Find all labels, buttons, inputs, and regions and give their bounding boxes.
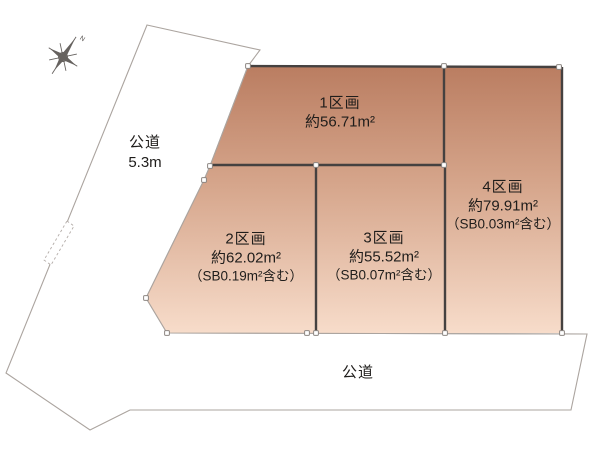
compass-icon: N xyxy=(38,23,93,83)
parcel-3-label: 3区画 約55.52m² （SB0.07m²含む） xyxy=(327,230,441,285)
left-road-label: 公道 5.3m xyxy=(128,133,161,173)
compass-north-label: N xyxy=(78,35,86,44)
parcel-sb-note: （SB0.07m²含む） xyxy=(327,267,441,285)
parcel-2-label: 2区画 約62.02m² （SB0.19m²含む） xyxy=(189,231,303,286)
parcel-4-label: 4区画 約79.91m² （SB0.03m²含む） xyxy=(446,179,560,234)
parcel-name: 2区画 xyxy=(189,231,303,249)
parcel-1-label: 1区画 約56.71m² xyxy=(305,95,375,132)
parcel-area: 約56.71m² xyxy=(305,113,375,132)
lot-layout-diagram: N 公道 5.3m 公道 1区画 約56.71m² 2区画 約62.02m² （… xyxy=(0,0,600,450)
road-edge-notch xyxy=(44,221,74,265)
road-name: 公道 xyxy=(128,133,161,153)
parcel-area: 約55.52m² xyxy=(327,248,441,267)
parcel-sb-note: （SB0.03m²含む） xyxy=(446,216,560,234)
road-name: 公道 xyxy=(342,363,374,383)
parcel-sb-note: （SB0.19m²含む） xyxy=(189,268,303,286)
road-width: 5.3m xyxy=(128,153,161,173)
parcel-name: 1区画 xyxy=(305,95,375,113)
parcel-area: 約79.91m² xyxy=(446,197,560,216)
bottom-road-label: 公道 xyxy=(342,363,374,383)
parcel-area: 約62.02m² xyxy=(189,249,303,268)
parcel-name: 3区画 xyxy=(327,230,441,248)
parcel-name: 4区画 xyxy=(446,179,560,197)
